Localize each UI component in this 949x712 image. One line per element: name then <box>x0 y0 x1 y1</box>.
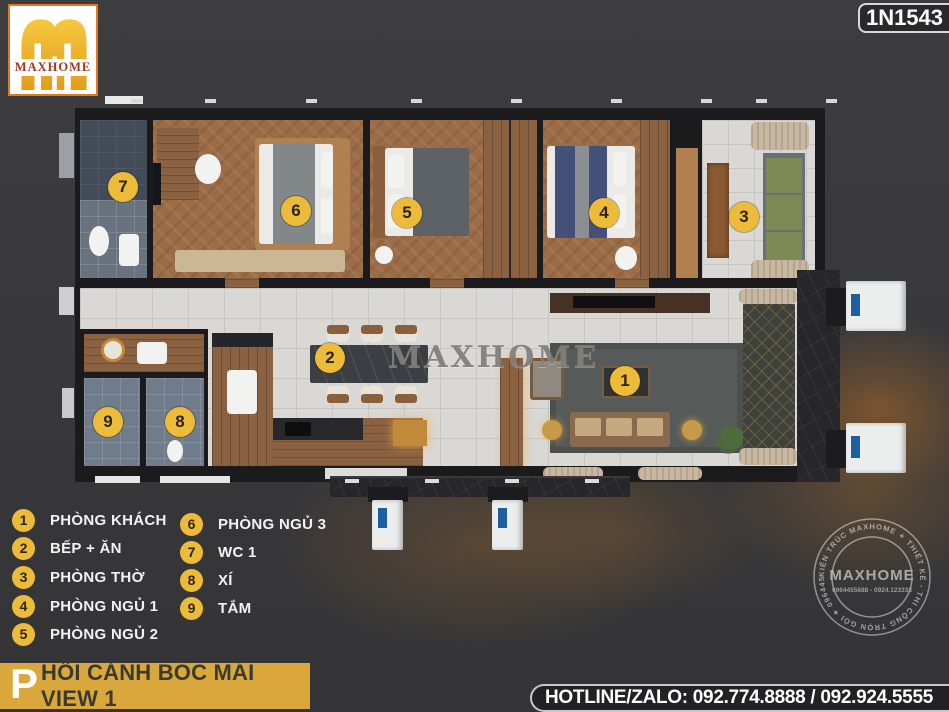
kitchen-counter-top <box>212 333 273 347</box>
bed-3-pillow <box>321 198 333 234</box>
legend-dot-3: 3 <box>12 566 35 589</box>
roof-light <box>611 99 622 103</box>
legend-label-2: BẾP + ĂN <box>50 540 122 557</box>
vanity-mirror <box>101 338 125 362</box>
legend-item-5: 5 PHÒNG NGỦ 2 <box>12 622 158 646</box>
room-marker-4: 4 <box>589 198 619 228</box>
roof-light <box>131 99 142 103</box>
hall-console <box>676 148 698 278</box>
bed-2-pillow <box>388 154 404 188</box>
bedroom1-chair <box>615 246 637 270</box>
dining-chair <box>361 325 383 342</box>
legend-dot-8: 8 <box>180 569 203 592</box>
logo-m-icon <box>14 8 94 92</box>
ac-bracket <box>826 288 848 326</box>
ac-unit <box>492 500 523 550</box>
bed-1-throw <box>575 146 589 238</box>
band-light <box>585 479 599 483</box>
band-light <box>425 479 439 483</box>
maxhome-seal: KIẾN TRÚC MAXHOME ✦ THIẾT KẾ - THI CÔNG … <box>804 509 940 645</box>
ac-label <box>378 508 387 528</box>
roof-light <box>205 99 216 103</box>
legend-label-9: TẮM <box>218 600 251 617</box>
vanity-basin <box>137 342 167 364</box>
plant <box>720 426 744 450</box>
bed-2-headboard <box>373 146 385 238</box>
fridge <box>227 370 257 414</box>
bedroom2-stool <box>375 246 393 264</box>
legend-label-4: PHÒNG NGỦ 1 <box>50 598 158 615</box>
sofa-cushion <box>637 418 663 436</box>
legend-dot-2: 2 <box>12 537 35 560</box>
roof-light <box>306 99 317 103</box>
bed-2-blanket <box>413 148 469 236</box>
window-panes <box>766 156 802 265</box>
entry-rug <box>743 304 795 452</box>
dining-chair <box>395 386 417 403</box>
gold-side-table <box>542 420 562 440</box>
step-slab <box>95 476 140 483</box>
sofa-cushion <box>575 418 601 436</box>
legend-item-1: 1 PHÒNG KHÁCH <box>12 508 167 532</box>
bed-1-pillow <box>613 152 626 186</box>
legend-item-9: 9 TẮM <box>180 596 251 620</box>
dining-chair <box>327 386 349 403</box>
tv <box>573 296 655 308</box>
room-marker-8: 8 <box>165 407 195 437</box>
room-marker-5: 5 <box>392 198 422 228</box>
room-marker-1: 1 <box>610 366 640 396</box>
room-marker-6: 6 <box>281 196 311 226</box>
seal-center-text: MAXHOME <box>829 567 914 584</box>
band-light <box>505 479 519 483</box>
seal-phones-text: 0964455888 - 0924.123333 <box>832 587 912 594</box>
poster-scene: MAXHOME 1N1543 <box>0 0 949 712</box>
door <box>225 278 259 288</box>
ac-unit <box>846 281 906 331</box>
bedroom3-rug <box>175 250 345 272</box>
legend-item-2: 2 BẾP + ĂN <box>12 536 122 560</box>
dining-chair <box>361 386 383 403</box>
dining-chair <box>327 325 349 342</box>
ac-unit <box>372 500 403 550</box>
band-light <box>345 479 359 483</box>
roof-light <box>756 99 767 103</box>
logo-wordmark: MAXHOME <box>13 59 93 76</box>
bed-3-pillow <box>321 152 333 188</box>
curtain <box>638 467 702 480</box>
legend-label-3: PHÒNG THỜ <box>50 569 145 586</box>
altar-table <box>707 163 729 258</box>
door <box>615 278 649 288</box>
side-window <box>62 388 74 418</box>
curtain <box>739 289 797 304</box>
legend-item-4: 4 PHÒNG NGỦ 1 <box>12 594 158 618</box>
title-banner: P HỐI CẢNH BÓC MÁI VIEW 1 <box>0 663 310 709</box>
side-window <box>59 133 74 178</box>
desk <box>157 128 199 200</box>
title-initial: P <box>10 663 38 705</box>
ac-unit <box>846 423 906 473</box>
ac-label <box>498 508 507 528</box>
gold-side-table <box>682 420 702 440</box>
legend-item-6: 6 PHÒNG NGỦ 3 <box>180 512 326 536</box>
kitchen-island-lit <box>393 420 427 446</box>
legend-label-5: PHÒNG NGỦ 2 <box>50 626 158 643</box>
toilet-2 <box>167 440 183 462</box>
legend-dot-1: 1 <box>12 509 35 532</box>
title-text: HỐI CẢNH BÓC MÁI VIEW 1 <box>41 660 310 712</box>
plan-id-badge: 1N1543 <box>858 3 949 33</box>
curtain <box>751 122 809 150</box>
legend-label-1: PHÒNG KHÁCH <box>50 512 167 529</box>
maxhome-watermark: MAXHOME <box>388 340 599 375</box>
room-marker-7: 7 <box>108 172 138 202</box>
room-marker-3: 3 <box>729 202 759 232</box>
cooktop <box>285 422 311 436</box>
tv-bedroom3 <box>153 163 161 205</box>
desk-chair <box>195 154 221 184</box>
legend-dot-6: 6 <box>180 513 203 536</box>
toilet <box>89 226 109 256</box>
roof-light <box>411 99 422 103</box>
roof-light <box>511 99 522 103</box>
maxhome-logo: MAXHOME <box>8 4 98 96</box>
hotline-bar: HOTLINE/ZALO: 092.774.8888 / 092.924.555… <box>530 684 949 712</box>
roof-light <box>701 99 712 103</box>
bedroom1-wardrobe <box>640 120 670 278</box>
ac-label <box>851 436 860 458</box>
legend-label-6: PHÒNG NGỦ 3 <box>218 516 326 533</box>
wardrobe-divider-line <box>509 120 511 278</box>
legend-item-8: 8 XÍ <box>180 568 233 592</box>
bed-3-blanket <box>273 144 315 244</box>
legend-dot-4: 4 <box>12 595 35 618</box>
room-marker-9: 9 <box>93 407 123 437</box>
legend-dot-9: 9 <box>180 597 203 620</box>
ac-bracket <box>826 430 848 468</box>
step-slab <box>160 476 230 483</box>
legend-label-8: XÍ <box>218 572 233 589</box>
legend-dot-7: 7 <box>180 541 203 564</box>
door <box>430 278 464 288</box>
worship-window <box>763 153 805 268</box>
ac-label <box>851 294 860 316</box>
legend-label-7: WC 1 <box>218 544 257 561</box>
legend-dot-5: 5 <box>12 623 35 646</box>
room-marker-2: 2 <box>315 343 345 373</box>
curtain <box>739 448 797 465</box>
bathtub <box>119 234 139 266</box>
roof-light <box>826 99 837 103</box>
side-window <box>59 287 74 315</box>
sofa-cushion <box>606 418 632 436</box>
legend-item-3: 3 PHÒNG THỜ <box>12 565 145 589</box>
legend-item-7: 7 WC 1 <box>180 540 257 564</box>
